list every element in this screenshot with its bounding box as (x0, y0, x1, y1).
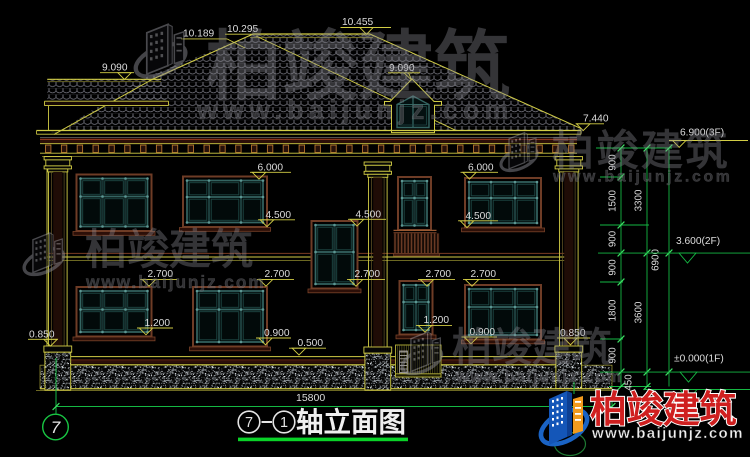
svg-text:9.090: 9.090 (102, 63, 128, 74)
svg-text:7.440: 7.440 (583, 114, 609, 125)
svg-text:柏竣建筑: 柏竣建筑 (85, 226, 253, 273)
svg-text:0.500: 0.500 (298, 338, 324, 349)
svg-text:4.500: 4.500 (356, 209, 382, 220)
svg-text:1: 1 (280, 415, 288, 431)
svg-text:±0.000(1F): ±0.000(1F) (674, 353, 724, 364)
svg-text:轴立面图: 轴立面图 (296, 407, 406, 438)
svg-text:1800: 1800 (608, 299, 619, 321)
svg-text:2.700: 2.700 (471, 269, 497, 280)
svg-text:6.000: 6.000 (258, 162, 284, 173)
svg-text:0.850: 0.850 (29, 329, 55, 340)
svg-text:3.600(2F): 3.600(2F) (676, 236, 720, 247)
svg-text:2.700: 2.700 (265, 269, 291, 280)
svg-text:6.000: 6.000 (468, 162, 494, 173)
svg-text:15800: 15800 (296, 392, 325, 404)
svg-text:www.baijunjz.com: www.baijunjz.com (455, 368, 623, 386)
svg-text:1.200: 1.200 (145, 318, 171, 329)
svg-text:www.baijunjz.com: www.baijunjz.com (552, 169, 733, 186)
svg-text:www.baijunjz.com: www.baijunjz.com (85, 272, 266, 292)
svg-text:7: 7 (51, 418, 61, 437)
svg-text:6900: 6900 (651, 249, 662, 271)
svg-text:1.200: 1.200 (424, 315, 450, 326)
svg-text:www.baijunjz.com: www.baijunjz.com (591, 425, 744, 442)
svg-text:4.500: 4.500 (466, 211, 492, 222)
svg-text:柏竣建筑: 柏竣建筑 (452, 326, 612, 370)
svg-text:1500: 1500 (608, 190, 619, 212)
svg-text:4.500: 4.500 (266, 210, 292, 221)
svg-text:柏竣建筑: 柏竣建筑 (552, 127, 730, 174)
svg-text:柏竣建筑: 柏竣建筑 (590, 388, 736, 430)
svg-text:3300: 3300 (634, 189, 645, 211)
svg-text:900: 900 (608, 230, 619, 247)
svg-text:7: 7 (245, 415, 253, 431)
svg-text:www.baijunjz.com: www.baijunjz.com (196, 95, 514, 125)
svg-text:2.700: 2.700 (355, 269, 381, 280)
svg-text:0.900: 0.900 (264, 328, 290, 339)
svg-text:2.700: 2.700 (426, 269, 452, 280)
svg-text:900: 900 (608, 259, 619, 276)
svg-text:3600: 3600 (634, 301, 645, 323)
